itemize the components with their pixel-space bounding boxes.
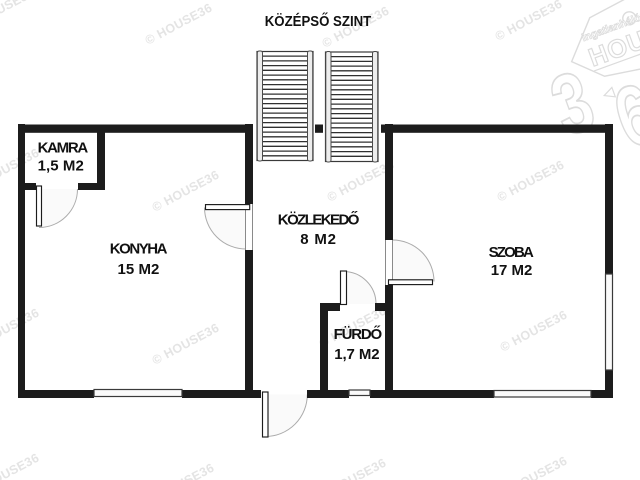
svg-text:KÖZÉPSŐ SZINT: KÖZÉPSŐ SZINT bbox=[265, 12, 372, 30]
svg-text:1,5 M2: 1,5 M2 bbox=[38, 158, 84, 175]
svg-text:1,7 M2: 1,7 M2 bbox=[334, 346, 379, 363]
svg-text:KAMRA: KAMRA bbox=[38, 140, 89, 157]
svg-text:FÜRDŐ: FÜRDŐ bbox=[334, 325, 383, 343]
svg-text:8 M2: 8 M2 bbox=[300, 231, 336, 248]
svg-text:KONYHA: KONYHA bbox=[110, 241, 168, 258]
svg-text:SZOBA: SZOBA bbox=[489, 244, 534, 261]
svg-text:KÖZLEKEDŐ: KÖZLEKEDŐ bbox=[278, 210, 360, 228]
svg-text:15 M2: 15 M2 bbox=[117, 261, 159, 278]
svg-text:17 M2: 17 M2 bbox=[491, 262, 533, 279]
